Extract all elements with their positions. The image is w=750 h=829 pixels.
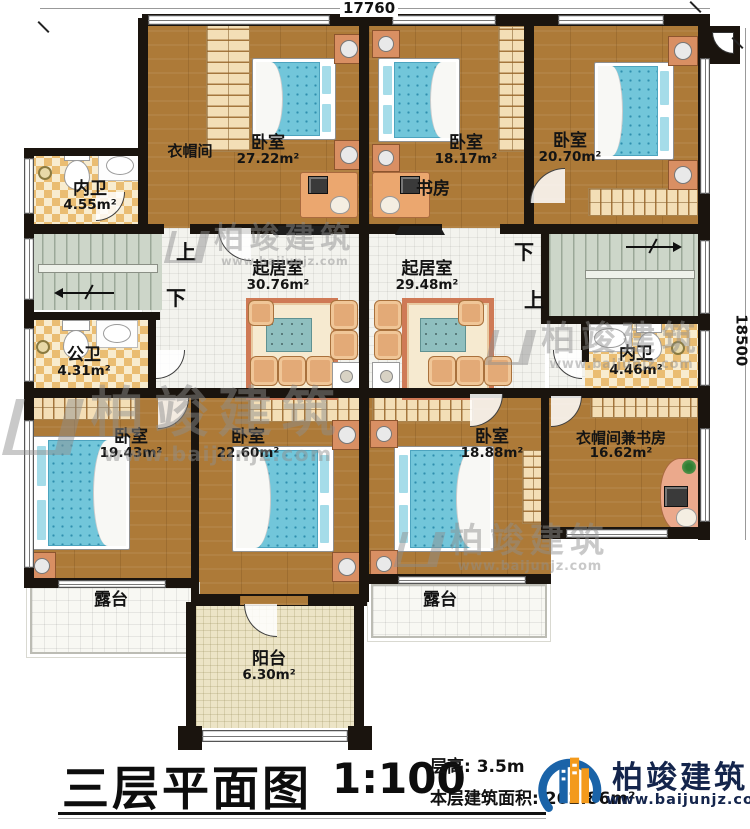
sofa-seat <box>374 330 402 360</box>
sofa-seat <box>374 300 402 330</box>
bed-bedroom27 <box>252 58 336 140</box>
room-name: 卧室 <box>539 132 602 150</box>
wardrobe-bedroom1817 <box>498 26 526 152</box>
dimension-line-right <box>745 28 746 540</box>
bed-bedroom2070 <box>594 62 674 160</box>
computer-monitor-icon <box>664 486 688 507</box>
wall <box>24 224 164 234</box>
floor-height-text: 层高: 3.5m <box>430 752 525 777</box>
room-name: 书房 <box>416 180 450 198</box>
watermark-text: 柏竣建筑 <box>214 224 356 254</box>
desk-chair <box>330 196 350 214</box>
watermark: 柏竣建筑 www.baijunjz.com <box>384 524 624 576</box>
sofa-seat <box>330 300 358 330</box>
watermark: 柏竣建筑 www.baijunjz.com <box>152 224 372 270</box>
brand-name: 柏竣建筑 <box>612 752 748 797</box>
balcony-railing-window <box>202 730 348 742</box>
window <box>700 240 710 314</box>
window <box>700 58 710 194</box>
armchair <box>248 300 274 326</box>
watermark-url: www.baijunjz.com <box>458 558 602 576</box>
staircase-right-rail <box>585 270 695 279</box>
sofa-seat <box>428 356 456 386</box>
window <box>24 158 34 214</box>
room-name: 衣帽间兼书房 <box>576 430 666 446</box>
room-name: 起居室 <box>396 260 459 278</box>
room-name: 露台 <box>423 591 457 609</box>
room-label-terrace-right: 露台 <box>423 591 457 609</box>
room-label-bedroom2070: 卧室 20.70m² <box>539 132 602 165</box>
window <box>392 15 496 25</box>
room-area: 16.62m² <box>576 446 666 461</box>
room-label-bedroom1888: 卧室 18.88m² <box>461 428 524 461</box>
watermark-logo-icon <box>394 532 446 567</box>
wall <box>186 602 196 730</box>
wall <box>138 18 148 230</box>
bed-bedroom1817 <box>378 58 460 142</box>
room-label-balcony: 阳台 6.30m² <box>242 650 295 683</box>
watermark-url: www.baijunjz.com <box>549 356 693 374</box>
room-area: 4.55m² <box>63 198 116 213</box>
sofa-seat <box>330 330 358 360</box>
room-name: 露台 <box>94 591 128 609</box>
wall <box>24 148 144 156</box>
floor-plan-canvas: 内卫 4.55m² 衣帽间 卧室 27.22m² 卧室 18.17m² 书房 卧… <box>0 0 750 829</box>
room-label-living-right: 起居室 29.48m² <box>396 260 459 293</box>
sofa-seat <box>456 356 484 386</box>
window <box>700 428 710 522</box>
title-underline-thin <box>58 818 546 819</box>
watermark: 柏竣建筑 www.baijunjz.com <box>2 386 352 469</box>
wardrobe-closet-left <box>206 24 250 152</box>
wall <box>359 18 369 602</box>
tv-right <box>395 226 445 235</box>
dimension-width-label: 17760 <box>340 0 398 17</box>
room-label-neiwei-tl: 内卫 4.55m² <box>63 180 116 213</box>
nightstand <box>370 420 398 448</box>
room-area: 18.88m² <box>461 446 524 461</box>
window <box>24 328 34 382</box>
room-area: 4.31m² <box>57 364 110 379</box>
drawing-title: 三层平面图 <box>62 750 312 819</box>
watermark-url: www.baijunjz.com <box>103 440 332 469</box>
dimension-height-label: 18500 <box>733 311 750 369</box>
room-name: 公卫 <box>57 346 110 364</box>
dimension-tick <box>689 1 701 13</box>
room-name: 卧室 <box>237 134 300 152</box>
watermark-logo-icon <box>165 231 211 263</box>
watermark-url: www.baijunjz.com <box>221 254 348 270</box>
watermark-logo-icon <box>485 330 537 365</box>
watermark: 柏竣建筑 www.baijunjz.com <box>488 322 703 374</box>
computer-monitor-icon <box>308 176 328 194</box>
watermark-text: 柏竣建筑 <box>541 322 701 356</box>
dimension-tick <box>37 21 49 33</box>
room-label-gongwei: 公卫 4.31m² <box>57 346 110 379</box>
wall <box>24 312 160 320</box>
room-area: 6.30m² <box>242 668 295 683</box>
room-label-cloak-study: 衣帽间兼书房 16.62m² <box>576 430 666 461</box>
window <box>58 580 166 588</box>
shower-icon <box>36 340 50 354</box>
room-name: 阳台 <box>242 650 295 668</box>
nightstand <box>668 160 698 190</box>
room-name: 内卫 <box>63 180 116 198</box>
desk-chair <box>676 508 697 527</box>
room-area: 27.22m² <box>237 152 300 167</box>
window <box>148 15 330 25</box>
room-area: 29.48m² <box>396 278 459 293</box>
watermark-text: 柏竣建筑 <box>90 386 345 440</box>
wardrobe-bedroom2070 <box>588 188 698 216</box>
stair-label-up-right: 上 <box>524 284 544 313</box>
wall <box>500 224 708 234</box>
wall <box>541 392 549 535</box>
nightstand <box>668 36 698 66</box>
plant-icon <box>682 460 696 474</box>
side-table-right <box>372 362 400 390</box>
room-name: 衣帽间 <box>167 143 212 159</box>
window <box>398 576 526 584</box>
watermark-logo-icon <box>2 399 84 455</box>
nightstand <box>332 552 362 582</box>
room-label-shufang: 书房 <box>416 180 450 198</box>
room-label-terrace-left: 露台 <box>94 591 128 609</box>
room-label-yimaojian: 衣帽间 <box>167 143 212 159</box>
room-label-bedroom1817: 卧室 18.17m² <box>435 134 498 167</box>
shower-icon <box>38 166 52 180</box>
brand-logo-icon <box>532 746 608 824</box>
window <box>558 15 664 25</box>
column <box>178 726 202 750</box>
terrace-right-floor <box>371 584 547 638</box>
room-name: 卧室 <box>461 428 524 446</box>
title-underline <box>58 812 546 815</box>
desk-chair <box>380 196 400 214</box>
wall <box>354 602 364 730</box>
column <box>348 726 372 750</box>
brand-url: www.baijunjz.com <box>606 792 750 808</box>
nightstand <box>372 144 400 172</box>
room-name: 卧室 <box>435 134 498 152</box>
watermark-text: 柏竣建筑 <box>450 524 610 558</box>
stair-label-down-left: 下 <box>166 282 186 311</box>
nightstand <box>372 30 400 58</box>
window <box>24 238 34 300</box>
room-label-bedroom27: 卧室 27.22m² <box>237 134 300 167</box>
sink-icon <box>103 324 131 343</box>
room-area: 20.70m² <box>539 150 602 165</box>
sink-icon <box>106 156 134 175</box>
staircase-left-rail <box>38 264 158 273</box>
stair-label-down-right: 下 <box>514 236 534 265</box>
armchair <box>458 300 484 326</box>
room-area: 30.76m² <box>247 278 310 293</box>
room-area: 18.17m² <box>435 152 498 167</box>
